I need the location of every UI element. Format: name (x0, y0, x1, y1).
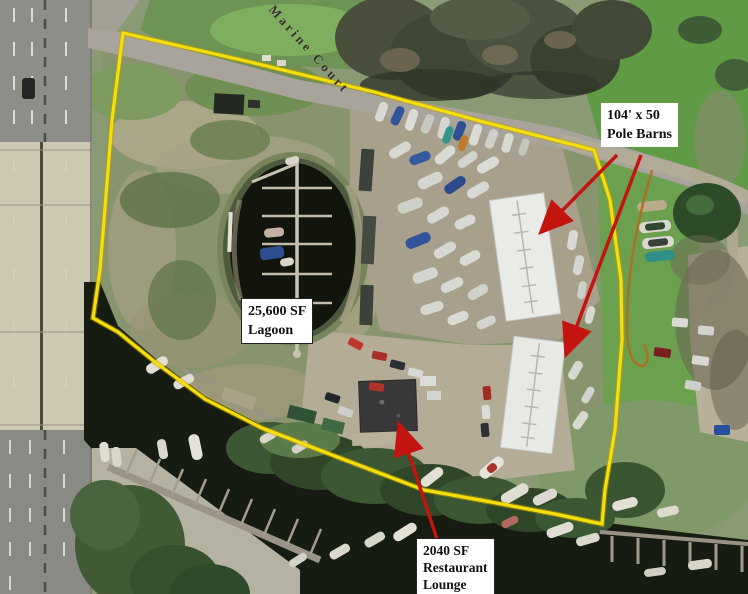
car-on-highway (22, 78, 35, 99)
lagoon-label-line2: Lagoon (248, 321, 306, 340)
restaurant-label-line2: Restaurant (423, 559, 488, 576)
small-structure (420, 376, 436, 386)
tarped-boat (714, 425, 730, 435)
pole-barns-label: 104' x 50 Pole Barns (601, 103, 678, 147)
pole-barns-label-line1: 104' x 50 (607, 106, 672, 125)
car-on-road (277, 60, 286, 66)
lagoon-label-line1: 25,600 SF (248, 302, 306, 321)
aerial-photo-canvas (0, 0, 748, 594)
restaurant-label: 2040 SF Restaurant Lounge (416, 538, 495, 594)
pole-barns-label-line2: Pole Barns (607, 125, 672, 144)
small-structure (427, 391, 441, 400)
restaurant-label-line1: 2040 SF (423, 542, 488, 559)
restaurant-building (359, 380, 418, 433)
lagoon-label: 25,600 SF Lagoon (241, 298, 313, 344)
restaurant-label-line3: Lounge (423, 576, 488, 593)
car-on-road (262, 55, 271, 61)
aerial-photo: Marine Court 104' x 50 Pole Barns 25,600… (0, 0, 748, 594)
